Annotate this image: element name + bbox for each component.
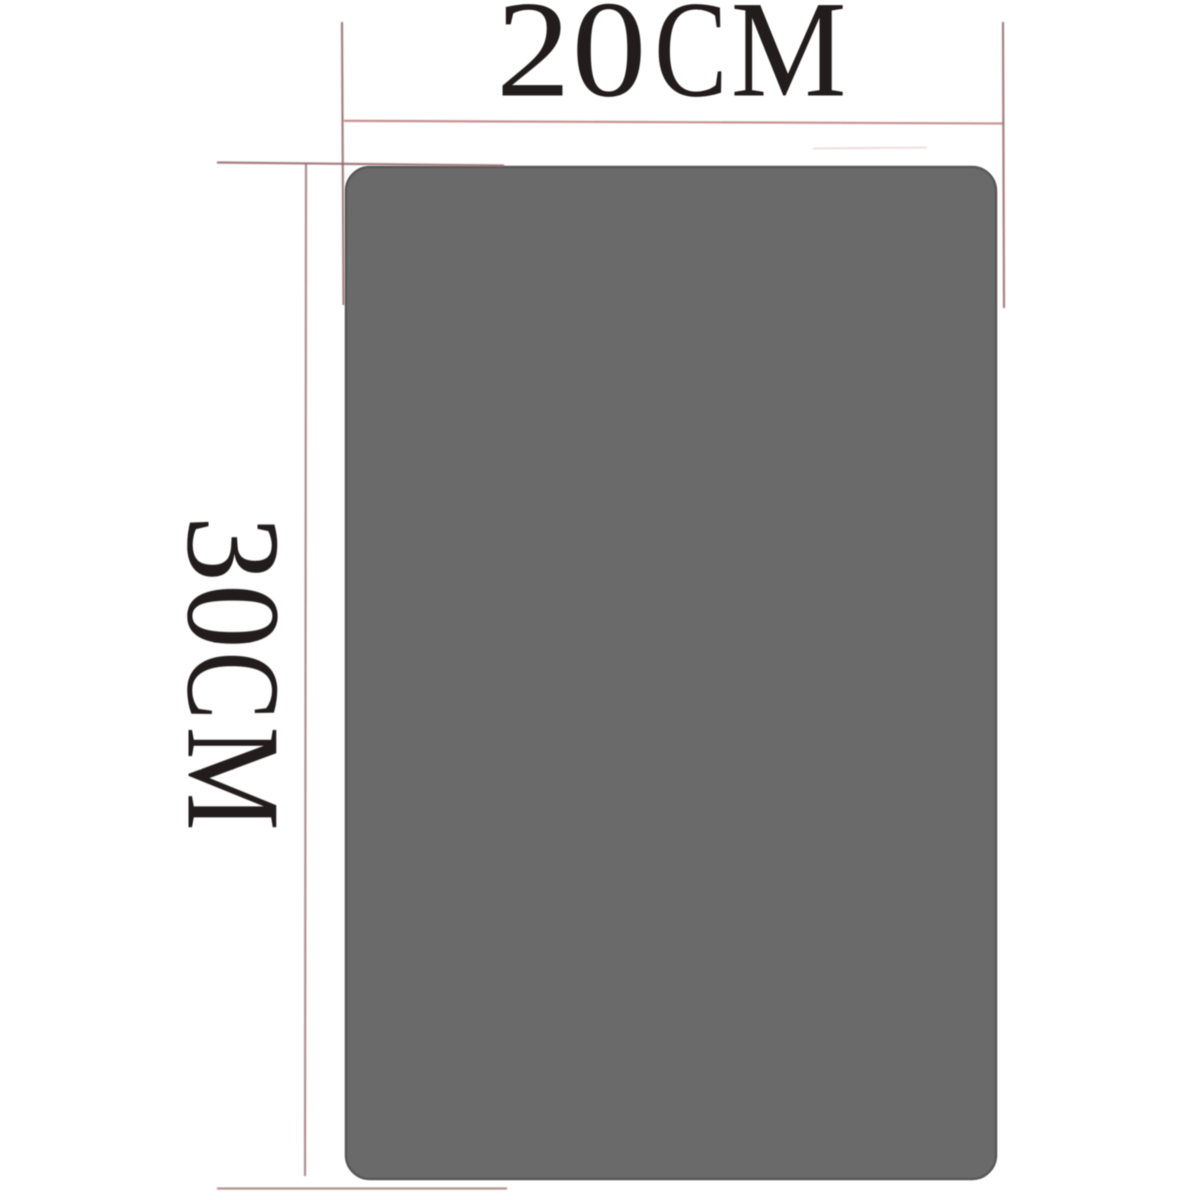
svg-text:2: 2 xyxy=(496,0,571,126)
svg-text:C: C xyxy=(654,0,727,125)
svg-text:0: 0 xyxy=(572,0,647,126)
svg-text:3: 3 xyxy=(159,516,308,582)
svg-text:M: M xyxy=(731,0,847,126)
svg-text:M: M xyxy=(159,727,307,831)
svg-text:0: 0 xyxy=(159,584,307,649)
svg-text:C: C xyxy=(159,652,308,720)
